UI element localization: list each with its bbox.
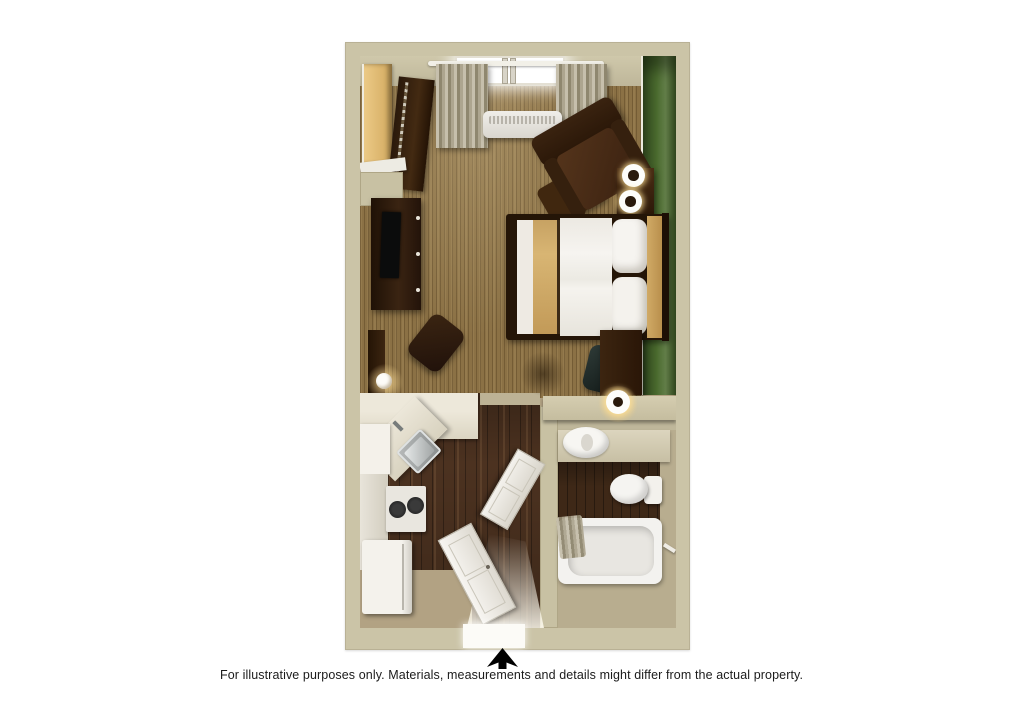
curtain-left [436, 64, 488, 148]
floorplan [345, 42, 690, 650]
television [380, 212, 401, 279]
closet-shelves [362, 64, 392, 164]
entry-doorway-opening [463, 624, 525, 648]
door-knob [485, 564, 490, 569]
bed-foot-linen [517, 220, 533, 334]
cooktop [386, 486, 426, 532]
disclaimer-text: For illustrative purposes only. Material… [0, 668, 1023, 682]
bathroom-divider-wall [540, 406, 558, 628]
vanity-sink-basin [581, 434, 593, 451]
door-panel [505, 458, 536, 492]
burner [389, 501, 406, 518]
floorplan-page: For illustrative purposes only. Material… [0, 0, 1023, 716]
headboard-frame [662, 213, 669, 341]
refrigerator-door-seam [402, 544, 404, 610]
burner [407, 497, 424, 514]
floorplan-interior [360, 56, 676, 628]
headboard [647, 216, 662, 338]
toilet-bowl [610, 474, 648, 504]
spiral-table-lamp [622, 164, 645, 187]
threshold [480, 393, 540, 405]
ac-vent-grille [489, 116, 556, 124]
drawer-handle [416, 252, 420, 256]
spiral-table-lamp [619, 190, 642, 213]
drawer-handle [416, 216, 420, 220]
pillow [612, 219, 647, 273]
desk-shadow [520, 352, 566, 396]
accent-lamp [606, 390, 630, 414]
refrigerator [362, 540, 412, 614]
floor-lamp [376, 373, 392, 389]
north-arrow-icon [487, 648, 518, 670]
shower-curtain [556, 515, 586, 559]
bed-runner [533, 220, 557, 334]
kitchen-cabinet [360, 424, 390, 474]
door-panel [448, 534, 486, 577]
drawer-handle [416, 288, 420, 292]
door-panel [467, 569, 506, 614]
bed-comforter [560, 218, 612, 336]
pillow [612, 277, 647, 335]
